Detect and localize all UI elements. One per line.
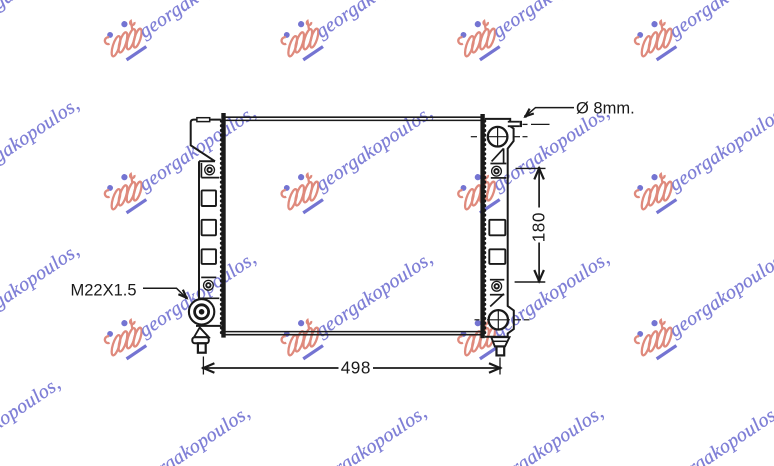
svg-text:M22X1.5: M22X1.5 xyxy=(71,282,137,300)
svg-text:Ø 8mm.: Ø 8mm. xyxy=(576,100,635,118)
svg-text:498: 498 xyxy=(341,357,371,377)
svg-text:180: 180 xyxy=(528,212,548,242)
